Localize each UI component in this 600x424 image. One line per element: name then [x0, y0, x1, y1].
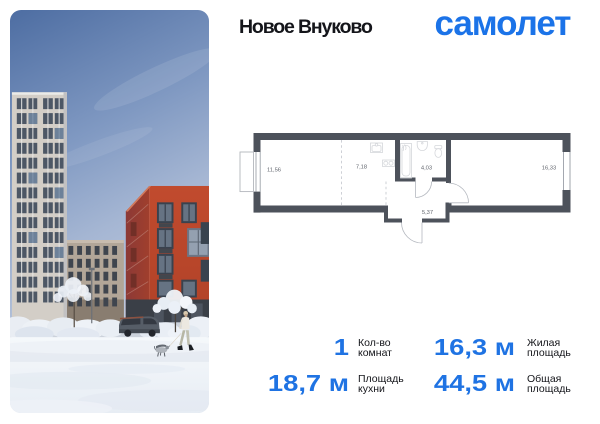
svg-text:11,56: 11,56: [267, 168, 281, 174]
svg-text:5,37: 5,37: [422, 210, 433, 216]
svg-text:7,18: 7,18: [356, 165, 367, 171]
svg-text:4,03: 4,03: [421, 166, 432, 172]
svg-text:16,33: 16,33: [542, 166, 557, 172]
